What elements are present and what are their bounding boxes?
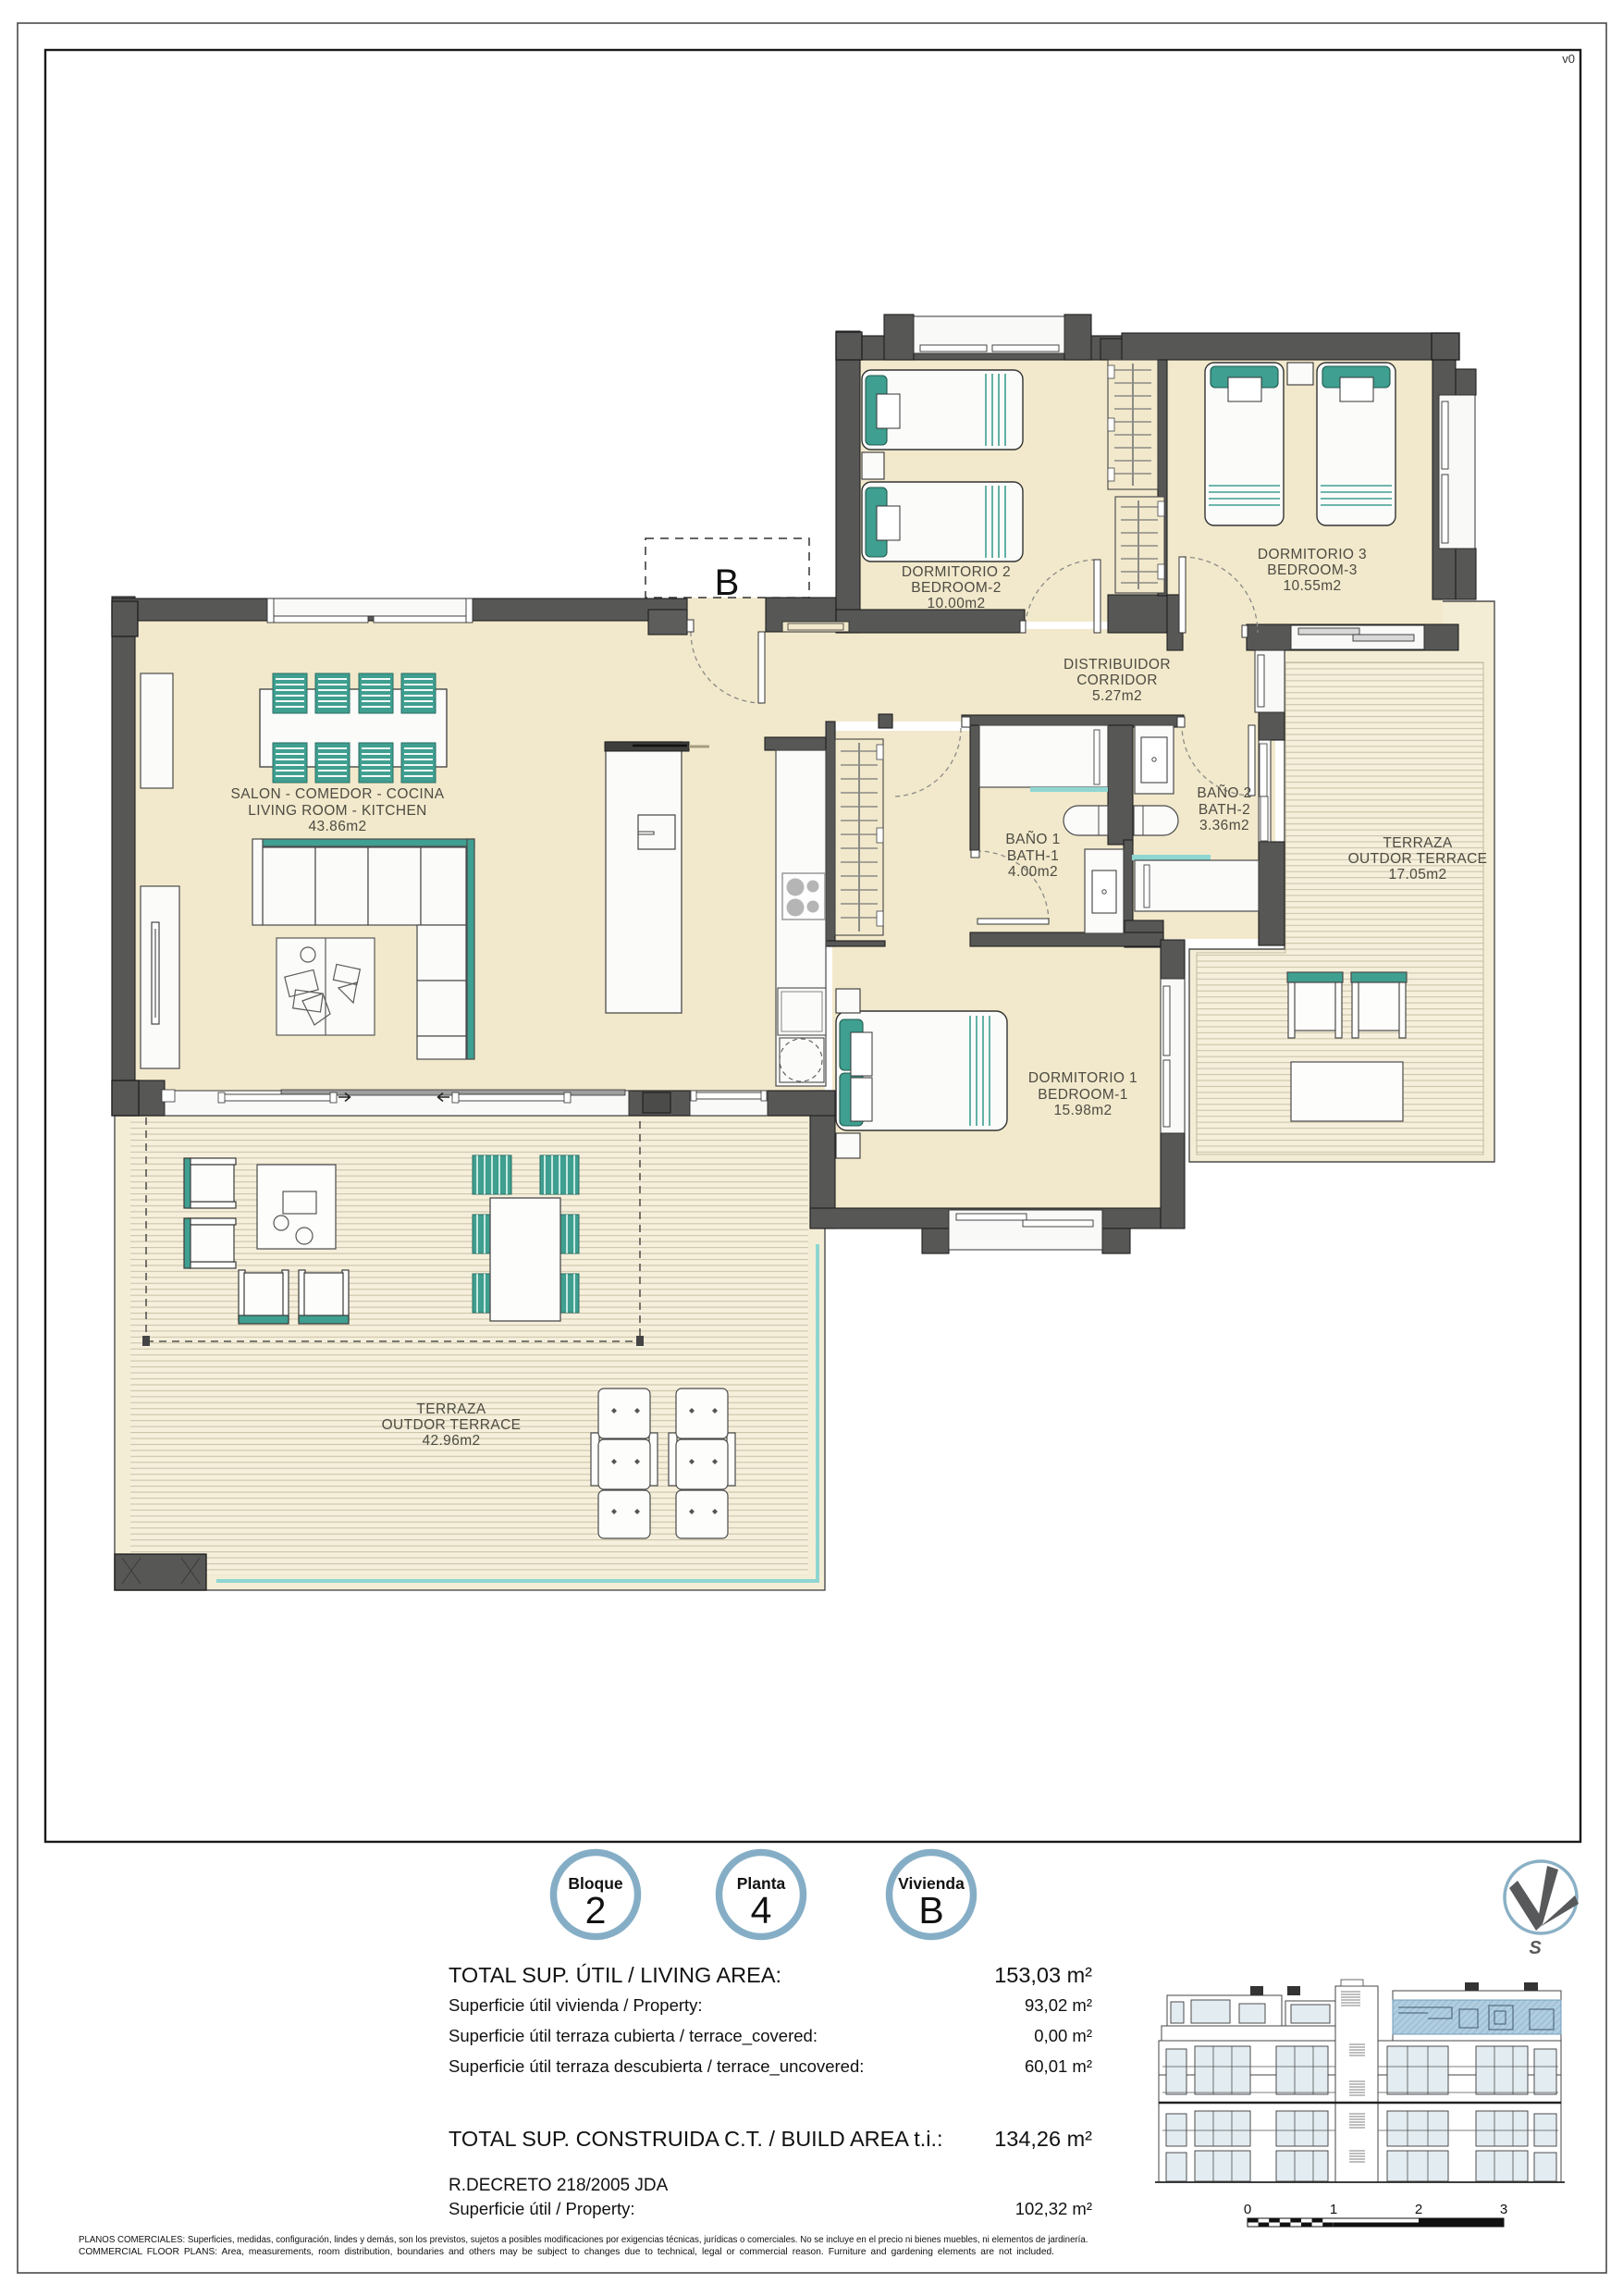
svg-text:2: 2 <box>585 1889 607 1932</box>
svg-text:BEDROOM-2: BEDROOM-2 <box>911 580 1001 596</box>
svg-text:15.98m2: 15.98m2 <box>1053 1103 1112 1118</box>
svg-text:17.05m2: 17.05m2 <box>1388 867 1446 883</box>
svg-text:S: S <box>1529 1938 1542 1958</box>
svg-text:42.96m2: 42.96m2 <box>422 1433 480 1449</box>
svg-text:Superficie útil vivienda / Pro: Superficie útil vivienda / Property: <box>449 1995 703 2015</box>
svg-text:BEDROOM-1: BEDROOM-1 <box>1038 1087 1127 1103</box>
svg-text:OUTDOR TERRACE: OUTDOR TERRACE <box>1348 851 1488 867</box>
svg-text:BAÑO 1: BAÑO 1 <box>1005 832 1060 847</box>
svg-text:153,03 m²: 153,03 m² <box>994 1963 1092 1987</box>
svg-text:B: B <box>918 1889 943 1932</box>
svg-text:BEDROOM-3: BEDROOM-3 <box>1267 562 1357 578</box>
svg-text:10.55m2: 10.55m2 <box>1283 578 1341 594</box>
svg-text:10.00m2: 10.00m2 <box>927 596 985 611</box>
svg-text:Superficie útil terraza cubier: Superficie útil terraza cubierta / terra… <box>449 2026 818 2046</box>
svg-text:3: 3 <box>1500 2202 1507 2217</box>
svg-text:TERRAZA: TERRAZA <box>1383 835 1452 851</box>
svg-text:PLANOS COMERCIALES: Superficie: PLANOS COMERCIALES: Superficies, medidas… <box>79 2235 1088 2245</box>
svg-text:CORRIDOR: CORRIDOR <box>1076 673 1158 688</box>
svg-text:BAÑO 2: BAÑO 2 <box>1197 785 1251 801</box>
svg-text:4.00m2: 4.00m2 <box>1008 864 1058 880</box>
svg-text:B: B <box>715 562 740 603</box>
svg-text:5.27m2: 5.27m2 <box>1092 688 1142 704</box>
svg-text:DISTRIBUIDOR: DISTRIBUIDOR <box>1064 657 1171 673</box>
svg-text:SALON - COMEDOR - COCINA: SALON - COMEDOR - COCINA <box>231 786 445 802</box>
svg-text:DORMITORIO 3: DORMITORIO 3 <box>1258 547 1367 562</box>
svg-text:134,26 m²: 134,26 m² <box>994 2127 1092 2151</box>
svg-text:BATH-1: BATH-1 <box>1007 848 1059 864</box>
svg-text:TOTAL SUP. CONSTRUIDA C.T. / B: TOTAL SUP. CONSTRUIDA C.T. / BUILD AREA … <box>449 2127 943 2151</box>
svg-text:OUTDOR TERRACE: OUTDOR TERRACE <box>382 1417 522 1433</box>
svg-text:Superficie útil terraza descub: Superficie útil terraza descubierta / te… <box>449 2056 864 2077</box>
svg-text:3.36m2: 3.36m2 <box>1199 818 1249 833</box>
svg-text:93,02 m²: 93,02 m² <box>1025 1995 1092 2015</box>
svg-text:TERRAZA: TERRAZA <box>416 1401 486 1417</box>
svg-text:v0: v0 <box>1562 52 1575 66</box>
svg-text:DORMITORIO 1: DORMITORIO 1 <box>1028 1070 1137 1086</box>
svg-text:0,00 m²: 0,00 m² <box>1034 2026 1092 2045</box>
svg-text:102,32 m²: 102,32 m² <box>1015 2199 1092 2218</box>
svg-text:R.DECRETO 218/2005 JDA: R.DECRETO 218/2005 JDA <box>449 2176 669 2195</box>
svg-text:TOTAL SUP. ÚTIL / LIVING AREA:: TOTAL SUP. ÚTIL / LIVING AREA: <box>449 1963 781 1987</box>
svg-text:Superficie útil / Property:: Superficie útil / Property: <box>449 2199 635 2218</box>
svg-text:LIVING ROOM - KITCHEN: LIVING ROOM - KITCHEN <box>248 803 427 819</box>
svg-text:2: 2 <box>1415 2202 1422 2217</box>
svg-text:1: 1 <box>1330 2202 1337 2217</box>
svg-text:0: 0 <box>1244 2202 1251 2217</box>
svg-text:DORMITORIO 2: DORMITORIO 2 <box>902 564 1011 580</box>
svg-text:4: 4 <box>751 1889 772 1932</box>
svg-text:60,01 m²: 60,01 m² <box>1025 2056 1092 2076</box>
svg-text:43.86m2: 43.86m2 <box>308 819 366 834</box>
svg-text:COMMERCIAL FLOOR PLANS: Area,: COMMERCIAL FLOOR PLANS: Area, measuremen… <box>79 2247 1054 2257</box>
svg-text:BATH-2: BATH-2 <box>1199 802 1250 818</box>
